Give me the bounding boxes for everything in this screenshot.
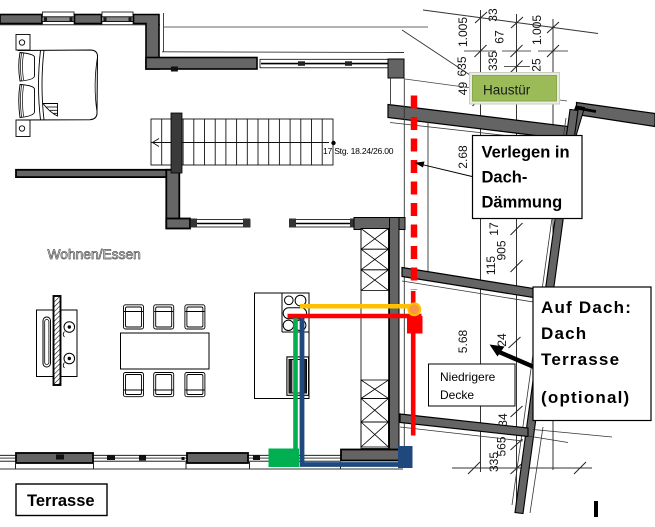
svg-text:49: 49	[456, 82, 470, 96]
svg-text:Decke: Decke	[440, 388, 474, 402]
svg-text:115: 115	[484, 256, 498, 275]
svg-text:1.005: 1.005	[456, 17, 470, 47]
svg-text:Haustür: Haustür	[483, 83, 531, 98]
svg-text:17 Stg. 18.24/26.00: 17 Stg. 18.24/26.00	[323, 146, 394, 156]
svg-text:335: 335	[487, 452, 501, 472]
svg-text:Niedrigere: Niedrigere	[440, 370, 496, 384]
svg-text:24: 24	[495, 333, 509, 347]
svg-text:5.68: 5.68	[456, 329, 470, 353]
svg-text:33: 33	[486, 8, 500, 22]
svg-text:Terrasse: Terrasse	[541, 350, 620, 369]
svg-text:67: 67	[493, 30, 507, 44]
svg-text:Dach-: Dach-	[482, 169, 528, 187]
svg-text:335: 335	[486, 51, 500, 71]
svg-text:Dach: Dach	[541, 324, 587, 343]
svg-text:Dämmung: Dämmung	[482, 194, 563, 212]
svg-text:Auf Dach:: Auf Dach:	[541, 298, 632, 317]
svg-text:(optional): (optional)	[541, 388, 630, 407]
svg-text:Wohnen/Essen: Wohnen/Essen	[48, 247, 141, 262]
svg-text:25: 25	[530, 58, 544, 72]
svg-text:Verlegen in: Verlegen in	[482, 144, 570, 162]
svg-text:17: 17	[487, 222, 501, 236]
svg-text:635: 635	[455, 56, 469, 76]
svg-text:2.68: 2.68	[456, 145, 470, 169]
svg-text:Terrasse: Terrasse	[27, 492, 95, 510]
svg-text:1.005: 1.005	[530, 15, 544, 45]
